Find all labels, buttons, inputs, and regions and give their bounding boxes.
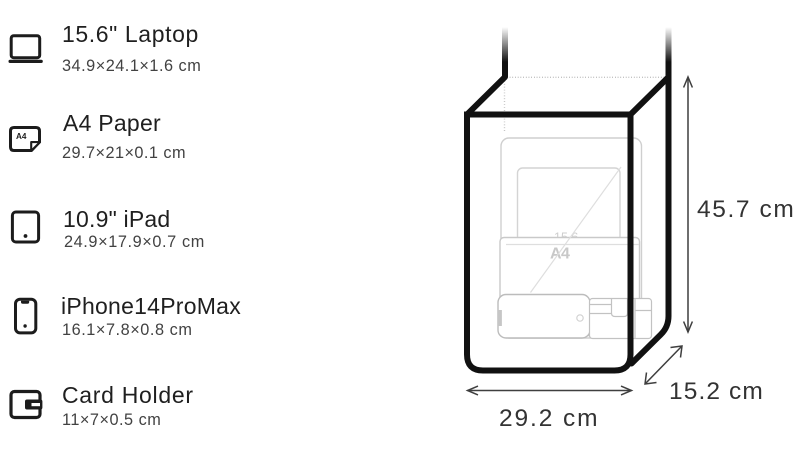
svg-text:A4: A4 — [550, 246, 570, 263]
svg-text:A4: A4 — [16, 132, 27, 141]
